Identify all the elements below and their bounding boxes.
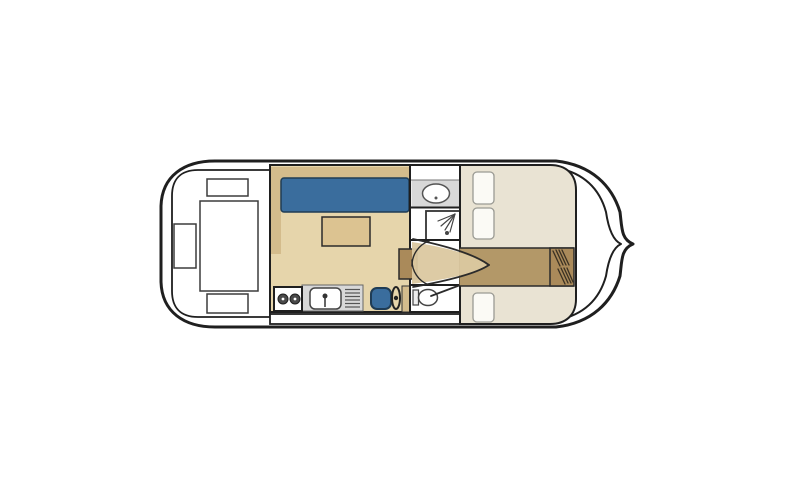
toilet-tank (413, 290, 419, 305)
toilet-bowl (419, 290, 438, 306)
washbasin (423, 184, 450, 203)
helm-console (402, 286, 410, 312)
pillow-bottom (473, 293, 494, 322)
burner-dot-left (282, 298, 285, 301)
steering-wheel-hub (394, 296, 398, 300)
burner-dot-right (294, 298, 297, 301)
helm-chair (371, 288, 391, 309)
houseboat-floorplan-canvas (0, 0, 800, 500)
faucet-icon (323, 294, 328, 299)
deck-table (200, 201, 258, 291)
pillow-top-2 (473, 208, 494, 239)
deck-seat-top (207, 179, 248, 196)
side-walkway (270, 314, 462, 324)
basin-drain (435, 197, 438, 200)
deck-seat-left (174, 224, 196, 268)
deck-seat-bottom (207, 294, 248, 313)
blue-sofa (281, 178, 409, 212)
sofa-back-top (271, 167, 409, 178)
saloon-table (322, 217, 370, 246)
sofa-back-left (271, 178, 281, 254)
floorplan-svg (0, 0, 800, 500)
pillow-top-1 (473, 172, 494, 204)
